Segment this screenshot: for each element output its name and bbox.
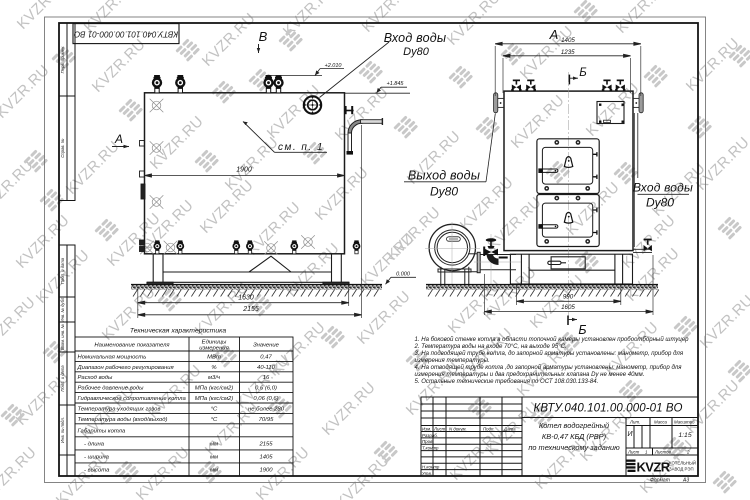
svg-text:KVZR.RU: KVZR.RU: [683, 35, 743, 95]
svg-text:°С: °С: [211, 406, 218, 412]
svg-text:KVZR.RU: KVZR.RU: [354, 288, 414, 348]
svg-text:+2.010: +2.010: [325, 63, 343, 69]
svg-text:Вход воды: Вход воды: [384, 31, 446, 45]
svg-text:KVZR.RU: KVZR.RU: [583, 80, 643, 140]
svg-text:КОТЕЛЬНЫЙ: КОТЕЛЬНЫЙ: [669, 461, 696, 466]
svg-text:Разраб.: Разраб.: [422, 433, 438, 438]
svg-text:Габариты котла: Габариты котла: [78, 429, 126, 435]
svg-text:KVZR.RU: KVZR.RU: [693, 134, 750, 194]
svg-text:+1.845: +1.845: [387, 81, 405, 87]
svg-text:0,06 (0,6): 0,06 (0,6): [253, 396, 278, 402]
svg-text:Утв.: Утв.: [422, 471, 432, 476]
svg-text:KVZR.RU: KVZR.RU: [613, 0, 673, 37]
svg-text:- длина: - длина: [78, 442, 105, 448]
svg-text:измерения температуры и два пр: измерения температуры и два предохраните…: [415, 372, 645, 378]
svg-text:2: 2: [686, 449, 690, 454]
svg-text:1900: 1900: [236, 167, 252, 174]
svg-text:KVZR.RU: KVZR.RU: [89, 36, 149, 96]
svg-text:КВТУ.040.101.00.000-01 ВО: КВТУ.040.101.00.000-01 ВО: [534, 403, 683, 415]
svg-text:KVZR.RU: KVZR.RU: [319, 379, 379, 439]
svg-text:- высота: - высота: [78, 468, 111, 474]
svg-text:2155: 2155: [258, 442, 273, 448]
svg-text:Лит.: Лит.: [629, 419, 640, 424]
svg-text:- ширина: - ширина: [78, 455, 110, 461]
svg-text:Лист: Лист: [627, 449, 640, 454]
svg-text:N докум.: N докум.: [449, 427, 467, 432]
svg-text:KVZR.RU: KVZR.RU: [697, 292, 750, 352]
svg-text:Техническая характеристика: Техническая характеристика: [130, 328, 226, 335]
svg-text:Инв. № подл.: Инв. № подл.: [60, 417, 65, 443]
svg-text:0.000: 0.000: [396, 272, 411, 278]
svg-text:990: 990: [563, 294, 574, 301]
svg-text:Масса: Масса: [654, 419, 668, 424]
svg-text:Пров.: Пров.: [422, 439, 434, 444]
svg-text:измерения: измерения: [199, 346, 229, 352]
svg-text:Б: Б: [578, 323, 586, 337]
svg-text:А3: А3: [682, 478, 689, 484]
svg-text:мм: мм: [210, 455, 218, 461]
svg-text:70/95: 70/95: [259, 417, 274, 423]
svg-text:А: А: [114, 132, 123, 146]
svg-text:Гидравлическое сопротивление к: Гидравлическое сопротивление котла: [78, 396, 187, 402]
svg-text:KVZR.RU: KVZR.RU: [683, 377, 743, 437]
svg-text:KVZR.RU: KVZR.RU: [444, 0, 504, 49]
svg-text:Б: Б: [579, 67, 587, 79]
svg-text:МПа (кгс/см2): МПа (кгс/см2): [195, 396, 234, 402]
svg-text:1630: 1630: [238, 295, 254, 302]
svg-text:Изм.: Изм.: [422, 427, 431, 432]
svg-text:Температура воды (вход/выход): Температура воды (вход/выход): [78, 417, 168, 423]
svg-text:1:15: 1:15: [678, 432, 691, 439]
svg-text:5. Остальные технические треб: 5. Остальные технические требования по О…: [415, 379, 599, 385]
svg-text:Значение: Значение: [253, 343, 280, 349]
svg-text:KVZR.RU: KVZR.RU: [199, 10, 259, 70]
svg-text:Диапазон рабочего регулировани: Диапазон рабочего регулирования: [77, 365, 175, 371]
svg-text:измерения температуры.: измерения температуры.: [415, 358, 490, 364]
svg-text:Дата: Дата: [503, 427, 516, 432]
svg-text:%: %: [211, 365, 216, 371]
svg-text:Перв. примен.: Перв. примен.: [60, 46, 65, 74]
svg-text:Наименование показателя: Наименование показателя: [94, 343, 170, 349]
svg-text:Dy80: Dy80: [646, 196, 674, 210]
svg-text:МВт: МВт: [207, 354, 221, 360]
svg-text:KVZR.RU: KVZR.RU: [14, 0, 74, 33]
svg-text:°С: °С: [211, 417, 218, 423]
svg-text:Подп. и дата: Подп. и дата: [60, 365, 65, 392]
svg-text:1405: 1405: [561, 37, 575, 44]
svg-text:Рабочее давление воды: Рабочее давление воды: [78, 386, 145, 392]
svg-text:КВТУ.040.101.00.000-01 ВО: КВТУ.040.101.00.000-01 ВО: [73, 30, 178, 39]
svg-text:Справ. №: Справ. №: [60, 138, 65, 157]
svg-text:Температура уходящих газов: Температура уходящих газов: [78, 406, 161, 412]
svg-text:м3/ч: м3/ч: [208, 375, 220, 381]
svg-text:Расход воды: Расход воды: [78, 375, 114, 381]
svg-text:0,47: 0,47: [260, 354, 272, 360]
svg-text:KVZR.RU: KVZR.RU: [0, 294, 39, 354]
svg-text:1. На боковой стенке котла в: 1. На боковой стенке котла в области топ…: [415, 336, 690, 343]
svg-text:Котел водогрейный: Котел водогрейный: [539, 421, 609, 430]
svg-text:Формат: Формат: [650, 478, 670, 484]
svg-text:Листов: Листов: [654, 449, 672, 454]
svg-text:Инв. № дубл.: Инв. № дубл.: [60, 297, 65, 323]
svg-text:1: 1: [645, 449, 648, 454]
svg-text:по техническому заданию: по техническому заданию: [528, 443, 620, 452]
svg-text:1605: 1605: [561, 304, 575, 311]
svg-text:Dy80: Dy80: [403, 46, 430, 58]
svg-text:1235: 1235: [561, 49, 575, 56]
svg-text:3. На подводящей трубе котла,: 3. На подводящей трубе котла, до запорно…: [415, 350, 684, 357]
svg-text:KVZR.RU: KVZR.RU: [532, 433, 592, 493]
svg-text:KVZR.RU: KVZR.RU: [0, 444, 40, 500]
svg-text:мм: мм: [210, 442, 218, 448]
svg-text:Номинальная мощность: Номинальная мощность: [78, 354, 147, 360]
svg-text:1405: 1405: [259, 455, 273, 461]
svg-text:ЗАВОД РЭП: ЗАВОД РЭП: [669, 467, 694, 472]
svg-text:2155: 2155: [242, 306, 259, 313]
svg-text:KVZR: KVZR: [637, 460, 671, 475]
svg-text:Подп.: Подп.: [483, 427, 495, 432]
svg-text:не более 280: не более 280: [248, 406, 285, 412]
svg-text:KVZR.RU: KVZR.RU: [133, 444, 193, 500]
svg-text:Взам. инв. №: Взам. инв. №: [60, 324, 65, 350]
svg-text:мм: мм: [210, 468, 218, 474]
svg-text:KVZR.RU: KVZR.RU: [0, 157, 37, 217]
svg-text:KVZR.RU: KVZR.RU: [312, 164, 372, 224]
svg-text:А: А: [549, 27, 559, 42]
svg-text:Н.контр: Н.контр: [422, 465, 440, 470]
svg-text:16: 16: [263, 375, 270, 381]
svg-text:Лист: Лист: [433, 427, 446, 432]
svg-text:И: И: [627, 431, 633, 438]
svg-text:КВ-0,47 КБД (РВР): КВ-0,47 КБД (РВР): [542, 432, 607, 441]
svg-text:KVZR.RU: KVZR.RU: [147, 113, 207, 173]
svg-text:Dy80: Dy80: [430, 185, 458, 199]
svg-text:Выход воды: Выход воды: [408, 169, 480, 183]
svg-text:МПа (кгс/см2): МПа (кгс/см2): [195, 386, 234, 392]
svg-text:KVZR.RU: KVZR.RU: [264, 82, 324, 142]
svg-text:0,6 (6,0): 0,6 (6,0): [255, 386, 277, 392]
svg-text:Масштаб: Масштаб: [674, 419, 695, 424]
svg-text:2. Температура воды на входе: 2. Температура воды на входе 70°С, на вы…: [414, 344, 567, 350]
svg-text:В: В: [259, 29, 268, 44]
svg-text:40-110: 40-110: [257, 365, 276, 371]
svg-text:1900: 1900: [259, 468, 273, 474]
svg-text:Т.контр: Т.контр: [422, 446, 439, 451]
svg-text:Вход воды: Вход воды: [633, 181, 693, 195]
svg-text:Подп. и дата: Подп. и дата: [60, 257, 65, 284]
svg-text:см. п. 1: см. п. 1: [278, 142, 324, 153]
svg-text:4. На отводящей трубе котла ,: 4. На отводящей трубе котла ,до запорной…: [415, 364, 683, 371]
